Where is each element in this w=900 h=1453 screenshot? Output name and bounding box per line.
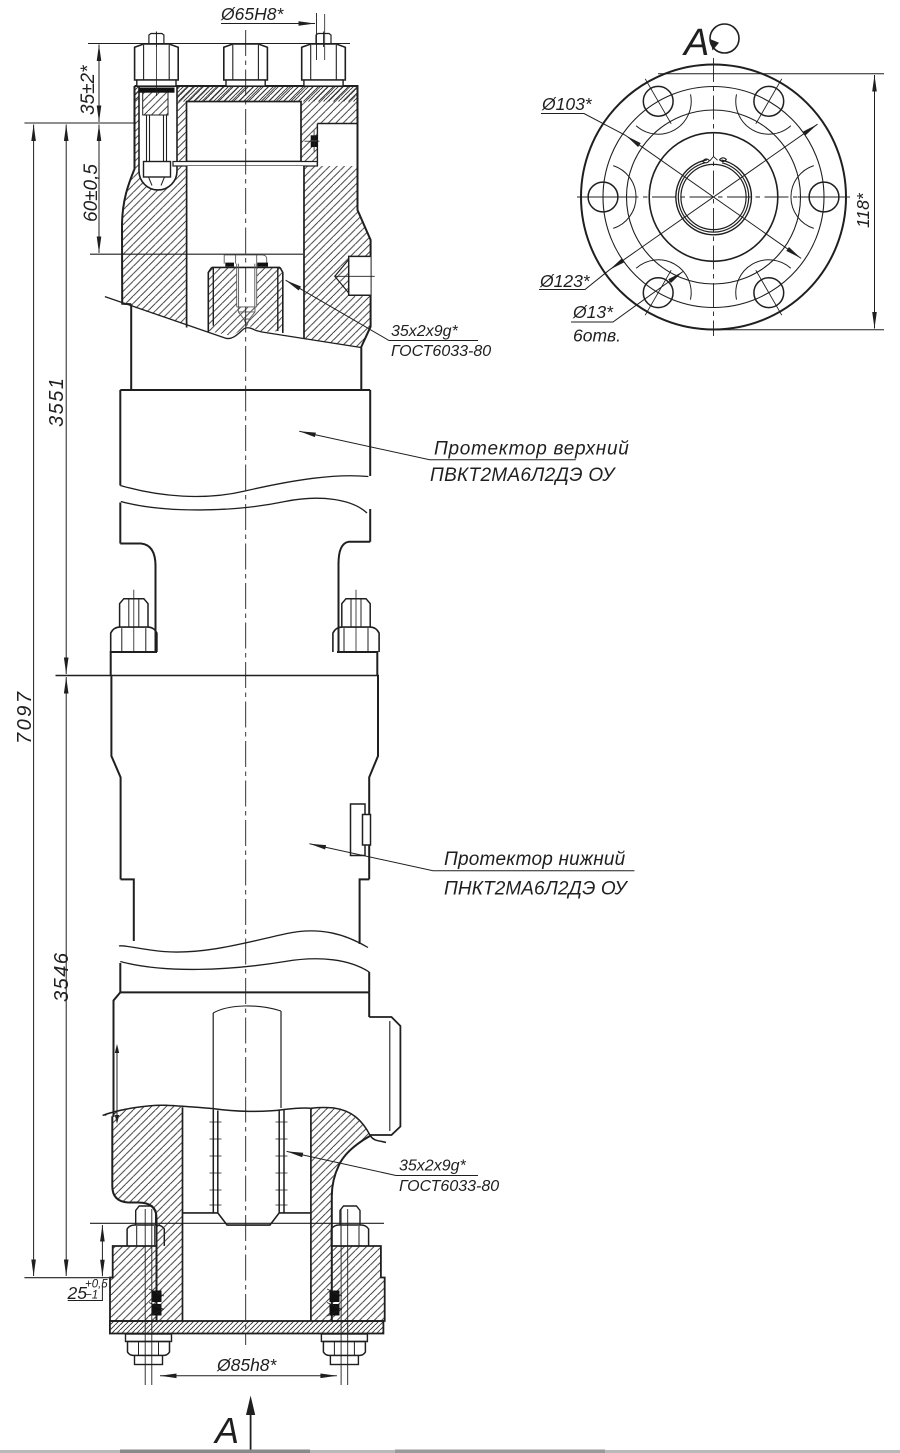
svg-text:Протектор верхний: Протектор верхний xyxy=(434,439,630,460)
svg-text:6отв.: 6отв. xyxy=(573,326,621,346)
svg-text:7097: 7097 xyxy=(14,690,36,745)
svg-text:3546: 3546 xyxy=(51,952,73,1003)
svg-text:Ø103*: Ø103* xyxy=(541,94,593,114)
svg-text:Ø85h8*: Ø85h8* xyxy=(216,1355,278,1375)
svg-text:118*: 118* xyxy=(853,192,873,228)
svg-text:ПВКТ2МА6Л2ДЭ ОУ: ПВКТ2МА6Л2ДЭ ОУ xyxy=(430,465,616,486)
svg-text:35x2x9g*: 35x2x9g* xyxy=(399,1158,466,1175)
svg-text:60±0,5: 60±0,5 xyxy=(81,164,102,222)
svg-text:3551: 3551 xyxy=(46,377,68,428)
svg-text:Ø13*: Ø13* xyxy=(572,302,614,322)
svg-text:35±2*: 35±2* xyxy=(78,65,99,115)
svg-text:35x2x9g*: 35x2x9g* xyxy=(391,323,458,340)
svg-text:−1: −1 xyxy=(85,1290,98,1302)
svg-text:Ø123*: Ø123* xyxy=(539,271,591,291)
svg-text:ГОСТ6033-80: ГОСТ6033-80 xyxy=(399,1178,499,1195)
svg-text:ПНКТ2МА6Л2ДЭ ОУ: ПНКТ2МА6Л2ДЭ ОУ xyxy=(444,879,628,900)
svg-text:Протектор нижний: Протектор нижний xyxy=(444,849,626,870)
svg-text:А: А xyxy=(682,22,709,64)
svg-text:А: А xyxy=(213,1410,239,1451)
svg-text:ГОСТ6033-80: ГОСТ6033-80 xyxy=(391,343,491,360)
svg-text:Ø65H8*: Ø65H8* xyxy=(220,4,284,24)
